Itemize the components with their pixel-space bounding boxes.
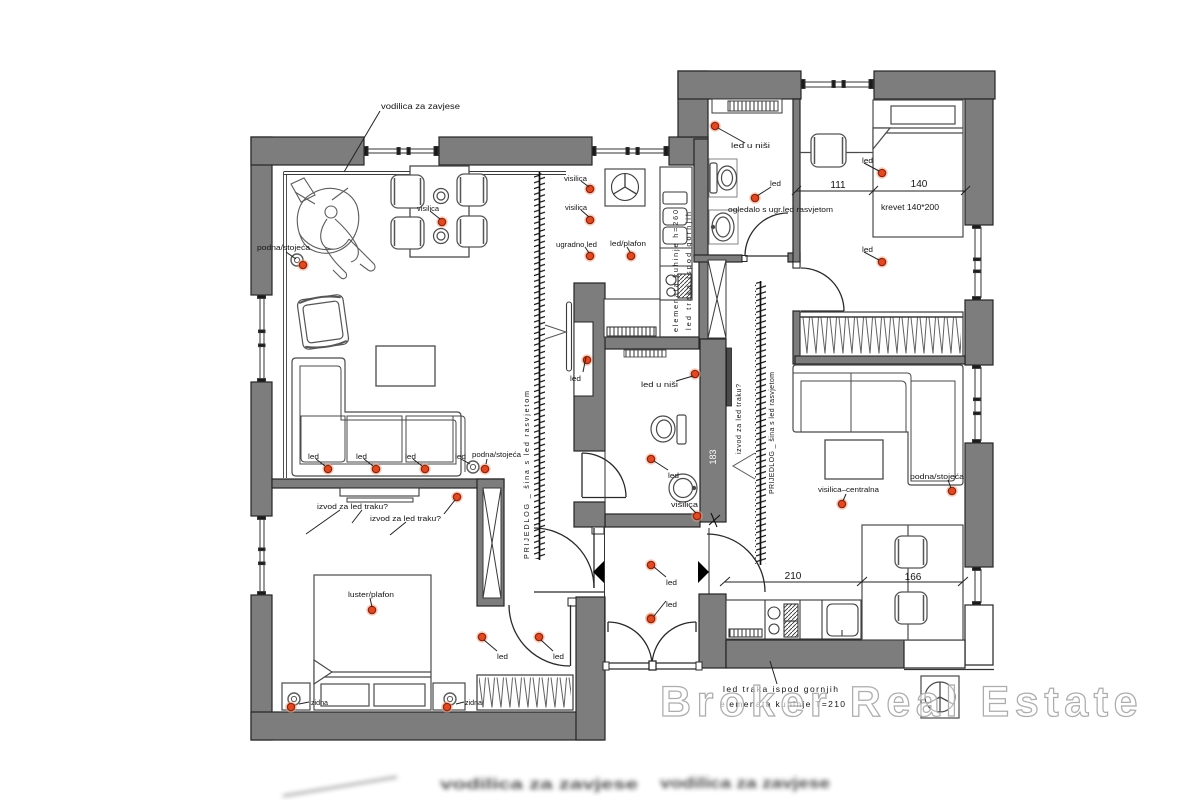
svg-text:led: led xyxy=(570,374,581,383)
svg-text:visilica: visilica xyxy=(564,174,588,183)
svg-text:led: led xyxy=(455,452,466,461)
svg-text:PRIJEDLOG _ šina s led ra: PRIJEDLOG _ šina s led rasvjetom xyxy=(522,391,531,559)
svg-text:podna/stojeća: podna/stojeća xyxy=(910,472,965,481)
svg-text:led: led xyxy=(666,600,677,609)
svg-text:led: led xyxy=(862,156,873,165)
svg-text:led: led xyxy=(405,452,416,461)
svg-text:podna/stojeća: podna/stojeća xyxy=(472,450,522,459)
svg-text:visilica–centralna: visilica–centralna xyxy=(818,485,880,494)
svg-text:111: 111 xyxy=(830,180,846,191)
svg-text:vodilica za zavjese: vodilica za zavjese xyxy=(440,776,638,793)
svg-text:zidna: zidna xyxy=(465,698,483,707)
svg-text:led: led xyxy=(770,179,781,188)
svg-text:166: 166 xyxy=(905,572,922,583)
svg-text:izvod za led traku?: izvod za led traku? xyxy=(736,384,743,454)
svg-text:140: 140 xyxy=(911,179,928,190)
svg-text:ogledalo s ugr.led rasvjeto: ogledalo s ugr.led rasvjetom xyxy=(728,205,833,214)
svg-text:led: led xyxy=(666,578,677,587)
svg-text:led: led xyxy=(308,452,319,461)
svg-text:led/plafon: led/plafon xyxy=(610,239,646,248)
svg-text:krevet 140*200: krevet 140*200 xyxy=(881,203,940,212)
svg-text:podna/stojeća: podna/stojeća xyxy=(257,243,311,252)
svg-text:led u niši: led u niši xyxy=(731,141,770,150)
svg-text:vodilica za zavjese: vodilica za zavjese xyxy=(381,102,461,111)
svg-text:Broker Real Estate: Broker Real Estate xyxy=(660,678,1143,726)
svg-text:vodilica za zavjese: vodilica za zavjese xyxy=(660,775,830,792)
svg-text:izvod za led traku?: izvod za led traku? xyxy=(370,514,441,523)
svg-text:led: led xyxy=(553,652,564,661)
svg-text:zidna: zidna xyxy=(311,698,329,707)
svg-text:led: led xyxy=(497,652,508,661)
svg-text:PRIJEDLOG _ šina s led ra: PRIJEDLOG _ šina s led rasvjetom xyxy=(769,372,776,494)
svg-text:led: led xyxy=(862,245,873,254)
svg-text:ugradno led: ugradno led xyxy=(556,240,597,249)
svg-text:visilica: visilica xyxy=(417,204,440,213)
svg-text:elemenata kuhinje h=260: elemenata kuhinje h=260 xyxy=(671,210,680,332)
svg-text:izvod za led traku?: izvod za led traku? xyxy=(317,502,388,511)
svg-text:led: led xyxy=(356,452,367,461)
svg-text:210: 210 xyxy=(785,571,802,582)
svg-text:led: led xyxy=(668,471,679,480)
svg-text:luster/plafon: luster/plafon xyxy=(348,590,394,599)
svg-text:višilica: višilica xyxy=(671,500,699,509)
svg-text:183: 183 xyxy=(708,449,718,464)
svg-text:led u niši: led u niši xyxy=(641,380,678,389)
svg-text:visilica: visilica xyxy=(565,203,588,212)
